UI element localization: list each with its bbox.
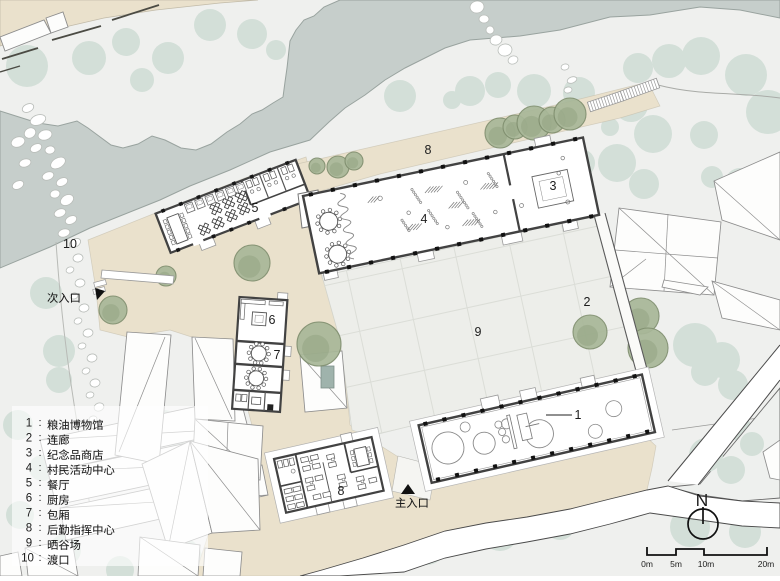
svg-text:10m: 10m [698,559,715,569]
svg-text:10: 10 [21,553,34,565]
svg-text::: : [38,417,41,429]
svg-text:5: 5 [252,201,259,215]
svg-text:20m: 20m [758,559,775,569]
svg-text::: : [38,492,41,504]
svg-text:4: 4 [26,463,33,475]
svg-text::: : [38,552,41,564]
svg-text:1: 1 [26,418,32,430]
svg-text:2: 2 [584,295,591,309]
svg-text:5m: 5m [670,559,682,569]
svg-text:N: N [696,490,709,510]
svg-text::: : [38,477,41,489]
svg-text:6: 6 [26,493,32,505]
svg-text:2: 2 [26,433,32,445]
svg-text:7: 7 [26,508,32,520]
svg-text:7: 7 [274,348,281,362]
svg-text::: : [38,507,41,519]
svg-text::: : [38,432,41,444]
svg-text:10: 10 [63,237,77,251]
svg-text:6: 6 [269,313,276,327]
svg-text::: : [38,522,41,534]
svg-text:4: 4 [421,212,428,226]
svg-text:8: 8 [425,143,432,157]
svg-text::: : [38,462,41,474]
svg-text:1: 1 [575,408,582,422]
svg-text:9: 9 [26,538,32,550]
svg-text::: : [38,537,41,549]
svg-text:9: 9 [475,325,482,339]
svg-text::: : [38,447,41,459]
svg-text:5: 5 [26,478,32,490]
svg-text:8: 8 [338,484,345,498]
svg-text:3: 3 [26,448,32,460]
svg-text:0m: 0m [641,559,653,569]
svg-text:3: 3 [550,179,557,193]
svg-text:8: 8 [26,523,32,535]
